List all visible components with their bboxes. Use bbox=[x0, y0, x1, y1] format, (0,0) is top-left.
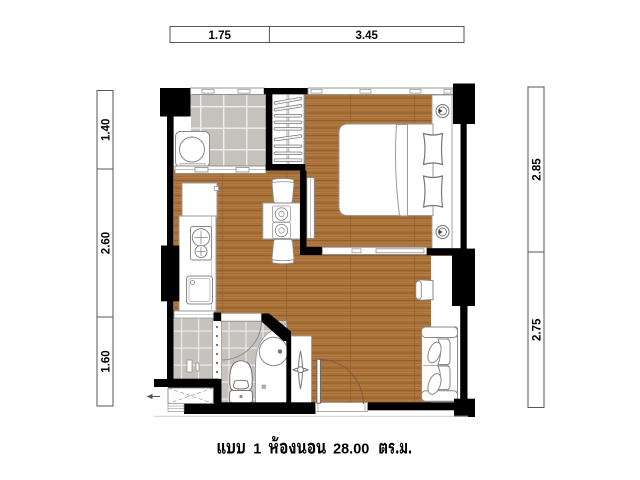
svg-text:1.75: 1.75 bbox=[209, 30, 232, 42]
svg-text:1: 1 bbox=[253, 441, 261, 457]
svg-text:28.00: 28.00 bbox=[333, 441, 369, 457]
svg-text:2.60: 2.60 bbox=[100, 232, 112, 254]
svg-text:2.85: 2.85 bbox=[531, 158, 543, 181]
svg-text:1.40: 1.40 bbox=[100, 119, 112, 141]
svg-text:3.45: 3.45 bbox=[356, 30, 379, 42]
svg-text:2.75: 2.75 bbox=[531, 318, 543, 341]
svg-text:1.60: 1.60 bbox=[100, 350, 112, 372]
